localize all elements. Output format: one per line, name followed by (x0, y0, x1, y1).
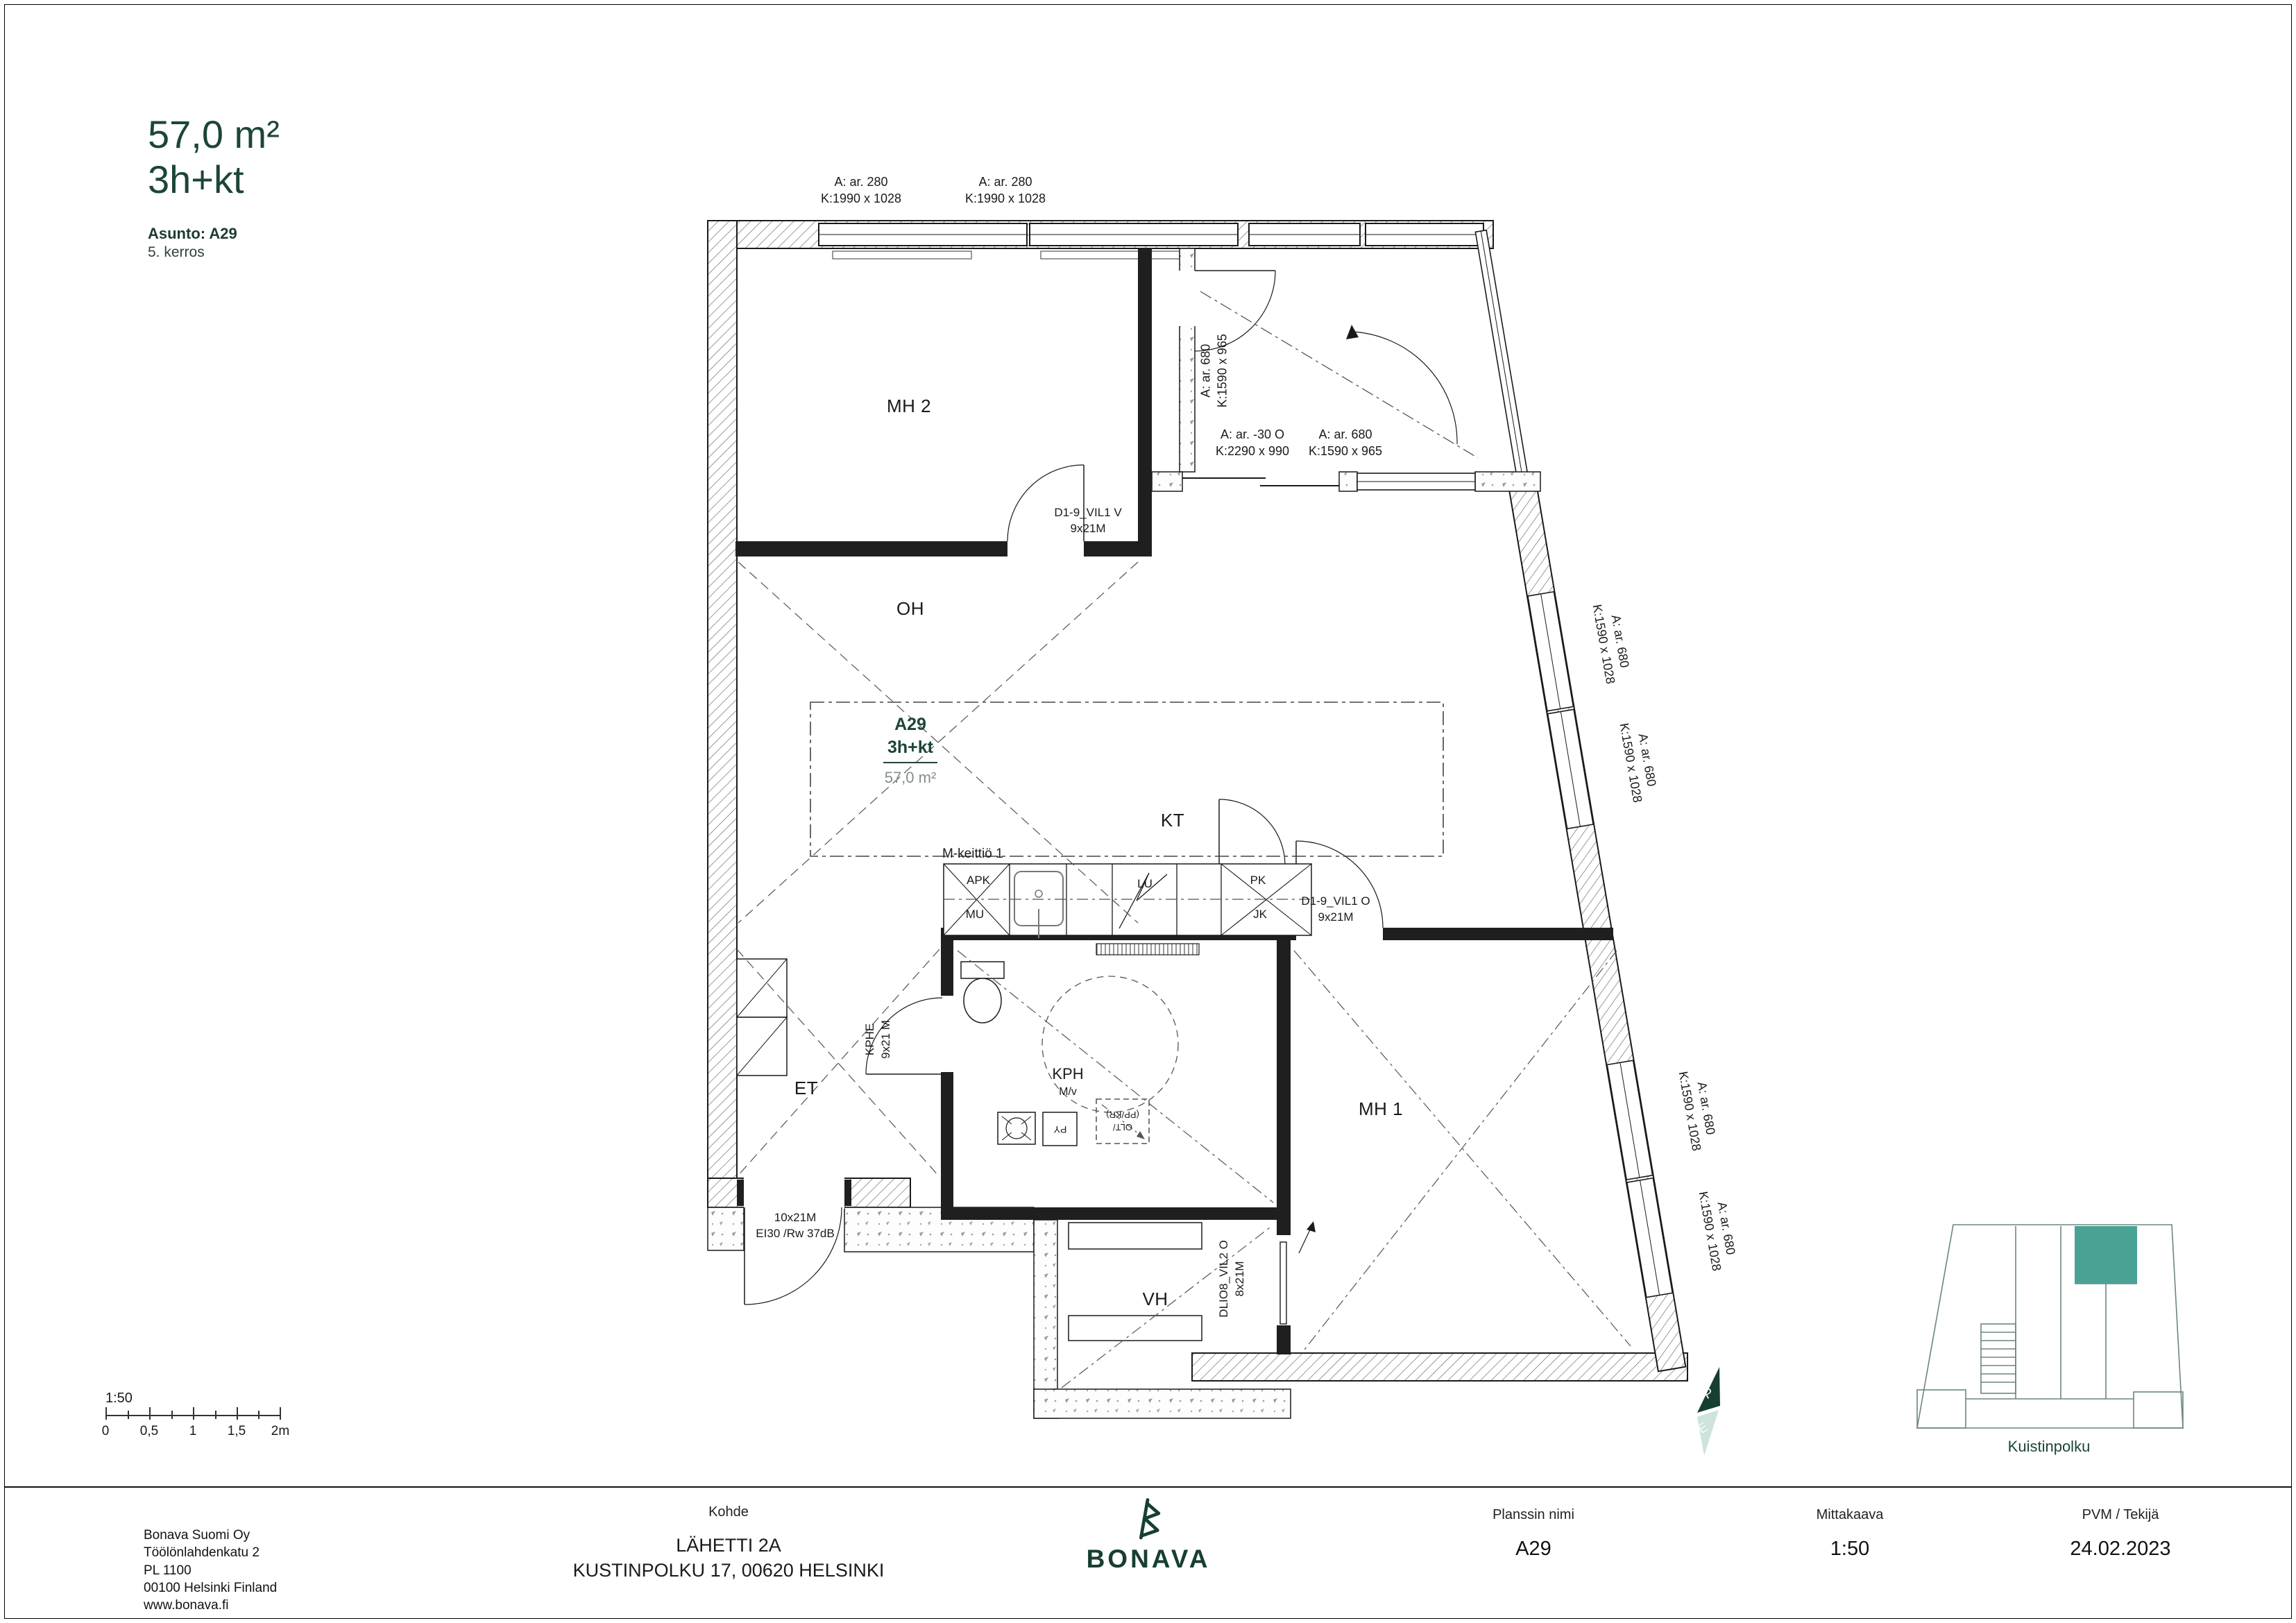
header-area: 57,0 m² (148, 112, 280, 158)
fixture-olt-line2: (PP/KR) (1095, 1109, 1150, 1121)
header-apartment: Asunto: A29 (148, 223, 237, 244)
unit-type: 3h+kt (883, 736, 937, 764)
unit-id: A29 (841, 713, 980, 736)
kitchen-title: M-keittiö 1 (942, 845, 1003, 863)
footer-divider (4, 1486, 2292, 1488)
kitchen-mu: MU (951, 907, 999, 923)
room-label-oh: OH (841, 597, 980, 621)
room-label-kph-main: KPH (1012, 1064, 1123, 1085)
header-type: 3h+kt (148, 158, 280, 203)
header-floor: 5. kerros (148, 243, 205, 262)
window-size: K:1590 x 965 (1276, 443, 1415, 459)
highlighted-apartment (2075, 1226, 2137, 1284)
site-map (1912, 1220, 2189, 1442)
door-label-vh: DLIO8_VIL2 O 8x21M (1216, 1220, 1248, 1338)
window-label-balcony-win: A: ar. 680 K:1590 x 965 (1276, 426, 1415, 460)
door-label-mh1: D1-9_VIL1 O 9x21M (1266, 894, 1405, 926)
door-size: 9x21M (1019, 521, 1157, 537)
window-label-balcony-side: A: ar. 680 K:1590 x 965 (1198, 294, 1232, 447)
scale-num-0: 0 (85, 1424, 126, 1439)
footer-col1-value: A29 (1388, 1538, 1679, 1561)
room-label-mh1: MH 1 (1311, 1097, 1450, 1121)
footer-col3-label: PVM / Tekijä (2016, 1507, 2225, 1523)
door-label-kph: KPHE 9x21 M (862, 998, 894, 1081)
kitchen-apk: APK (954, 873, 1003, 889)
window-size: K:1990 x 1028 (929, 190, 1082, 207)
scale-num-05: 0,5 (128, 1424, 170, 1439)
door-label-mh2: D1-9_VIL1 V 9x21M (1019, 505, 1157, 537)
window-size: K:1590 x 965 (1214, 294, 1231, 447)
scale-ratio: 1:50 (105, 1389, 133, 1408)
company-street: Töölönlahdenkatu 2 (144, 1544, 277, 1561)
bonava-logo-word: BONAVA (1044, 1545, 1252, 1574)
unit-area: 57,0 m² (841, 768, 980, 788)
fixture-olt-line1: OLT/ (1095, 1121, 1150, 1134)
room-label-kt: KT (1103, 808, 1242, 833)
company-name: Bonava Suomi Oy (144, 1527, 277, 1544)
window-area: A: ar. 680 (1276, 426, 1415, 443)
site-map-street-label: Kuistinpolku (1973, 1438, 2125, 1456)
door-label-entry: 10x21M EI30 /Rw 37dB (726, 1210, 865, 1242)
window-area: A: ar. 280 (785, 173, 937, 190)
scale-num-2m: 2m (260, 1424, 301, 1439)
window-area: A: ar. 280 (929, 173, 1082, 190)
window-label-top-2: A: ar. 280 K:1990 x 1028 (929, 173, 1082, 207)
door-size: 9x21M (1266, 910, 1405, 926)
footer-col2-value: 1:50 (1704, 1538, 1996, 1561)
footer-col2-label: Mittakaava (1746, 1507, 1954, 1523)
room-label-kph-sub: M/v (1012, 1085, 1123, 1100)
footer-kohde-line1: LÄHETTI 2A (486, 1535, 971, 1556)
footer-kohde-line2: KUSTINPOLKU 17, 00620 HELSINKI (486, 1560, 971, 1581)
door-size: 9x21 M (878, 998, 894, 1081)
footer-col1-label: Planssin nimi (1429, 1507, 1638, 1523)
door-code: D1-9_VIL1 O (1266, 894, 1405, 910)
door-fire-rating: EI30 /Rw 37dB (726, 1226, 865, 1242)
bonava-logo-icon (1131, 1497, 1167, 1542)
door-code: DLIO8_VIL2 O (1216, 1220, 1232, 1338)
fixture-label-py: PY (1043, 1123, 1078, 1136)
company-city: 00100 Helsinki Finland (144, 1579, 277, 1597)
room-label-kph: KPH M/v (1012, 1064, 1123, 1099)
room-label-vh: VH (1086, 1287, 1225, 1311)
scale-num-1: 1 (172, 1424, 214, 1439)
window-area: A: ar. 680 (1198, 294, 1214, 447)
door-code: KPHE (862, 998, 878, 1081)
company-website: www.bonava.fi (144, 1597, 277, 1614)
door-code: D1-9_VIL1 V (1019, 505, 1157, 521)
header-area-type: 57,0 m² 3h+kt (148, 112, 280, 203)
window-size: K:1990 x 1028 (785, 190, 937, 207)
door-size: 8x21M (1232, 1220, 1248, 1338)
company-po-box: PL 1100 (144, 1562, 277, 1579)
footer-col3-value: 24.02.2023 (1975, 1538, 2266, 1561)
footer-kohde-label: Kohde (624, 1504, 833, 1520)
window-label-top-1: A: ar. 280 K:1990 x 1028 (785, 173, 937, 207)
door-size: 10x21M (726, 1210, 865, 1226)
room-label-et: ET (737, 1076, 876, 1101)
scale-num-15: 1,5 (216, 1424, 257, 1439)
room-label-mh2: MH 2 (840, 394, 978, 418)
footer-company-block: Bonava Suomi Oy Töölönlahdenkatu 2 PL 11… (144, 1527, 277, 1614)
unit-center-label: A29 3h+kt 57,0 m² (841, 713, 980, 788)
kitchen-pk: PK (1234, 873, 1282, 889)
fixture-label-olt: OLT/ (PP/KR) (1095, 1109, 1150, 1133)
kitchen-lu: LU (1121, 876, 1169, 892)
